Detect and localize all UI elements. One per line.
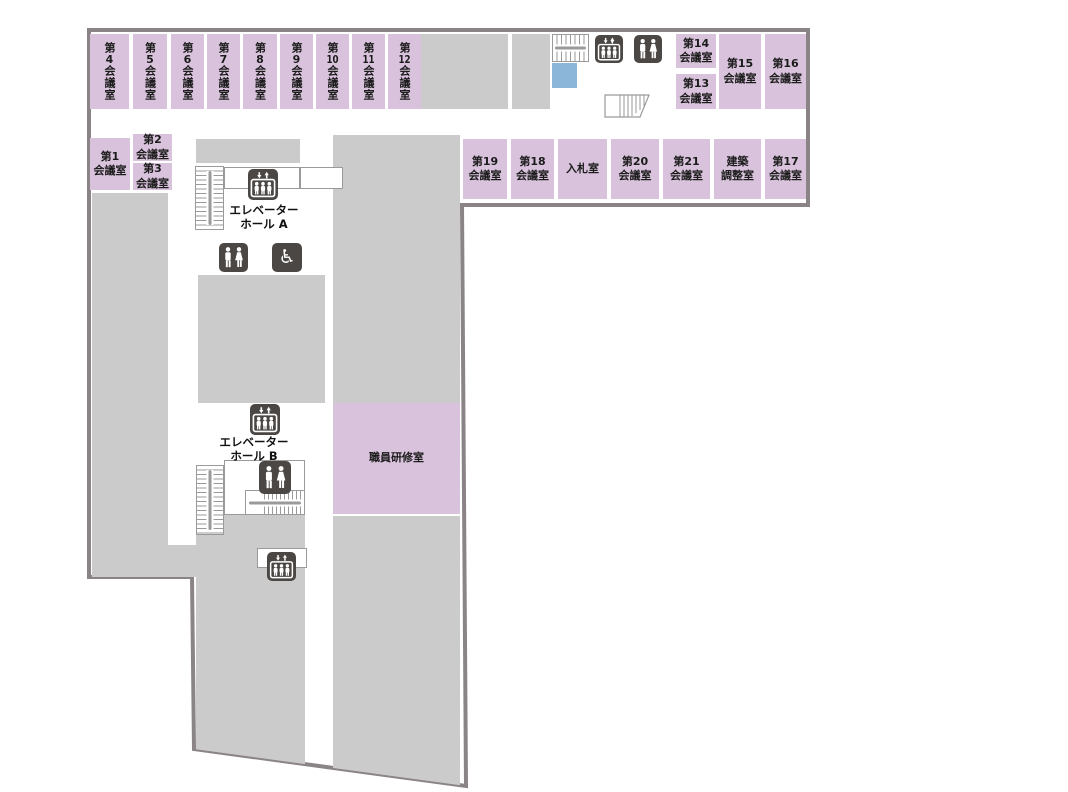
area-block: [168, 545, 196, 577]
room-meeting-16: 第16会議室: [765, 34, 806, 109]
elevator-icon: [250, 404, 280, 435]
room-meeting-19: 第19会議室: [463, 139, 507, 199]
room-bidding: 入札室: [558, 139, 607, 199]
restroom-icon: [259, 461, 291, 494]
room-building-coordination: 建築調整室: [714, 139, 761, 199]
room-meeting-3: 第3会議室: [133, 163, 172, 190]
water-area: [552, 63, 577, 88]
stairs-icon: [552, 34, 589, 62]
room-meeting-20: 第20会議室: [611, 139, 659, 199]
elevator-icon: [248, 169, 278, 200]
room-meeting-10: 第10会議室: [316, 34, 349, 109]
area-block: [417, 34, 508, 109]
elevator-hall-b-label: エレベーターホール B: [208, 435, 300, 465]
room-meeting-21: 第21会議室: [663, 139, 710, 199]
area-center-column-lower: [333, 516, 460, 786]
area-block: [512, 34, 550, 109]
stairs-handrail: [206, 171, 213, 226]
elevator-hall-a-box: [300, 167, 343, 189]
room-meeting-1: 第1会議室: [90, 138, 130, 190]
elevator-icon: [267, 552, 296, 581]
room-meeting-2: 第2会議室: [133, 134, 172, 161]
room-meeting-5: 第5会議室: [133, 34, 167, 109]
elevator-icon: [595, 35, 623, 63]
room-meeting-6: 第6会議室: [171, 34, 204, 109]
area-block: [196, 139, 300, 163]
room-meeting-14: 第14会議室: [676, 34, 716, 68]
area-left-column: [92, 193, 168, 577]
stairs-handrail: [555, 45, 587, 52]
restroom-icon: [219, 243, 248, 272]
restroom-icon: [634, 35, 662, 63]
stairs-handrail: [207, 470, 214, 530]
area-center-column-upper: [333, 135, 460, 403]
wheelchair-icon: ♿: [272, 243, 302, 272]
stairs-icon: [196, 465, 224, 535]
room-meeting-15: 第15会議室: [719, 34, 761, 109]
room-meeting-11: 第11会議室: [352, 34, 385, 109]
elevator-hall-a-label: エレベーターホール A: [220, 203, 308, 233]
floor-outline-svg: [0, 0, 1068, 792]
area-block: [224, 515, 305, 535]
room-meeting-13: 第13会議室: [676, 74, 716, 109]
room-meeting-8: 第8会議室: [243, 34, 277, 109]
room-meeting-9: 第9会議室: [280, 34, 313, 109]
room-meeting-4: 第4会議室: [90, 34, 129, 109]
room-staff-training: 職員研修室: [333, 403, 460, 514]
room-meeting-12: 第12会議室: [388, 34, 421, 109]
room-meeting-17: 第17会議室: [765, 139, 806, 199]
room-meeting-18: 第18会議室: [511, 139, 554, 199]
room-meeting-7: 第7会議室: [207, 34, 240, 109]
floor-plan: 第4会議室 第5会議室 第6会議室 第7会議室 第8会議室 第9会議室 第10会…: [0, 0, 1068, 792]
area-mid-block: [198, 275, 325, 403]
escalator-handrail: [249, 499, 301, 506]
